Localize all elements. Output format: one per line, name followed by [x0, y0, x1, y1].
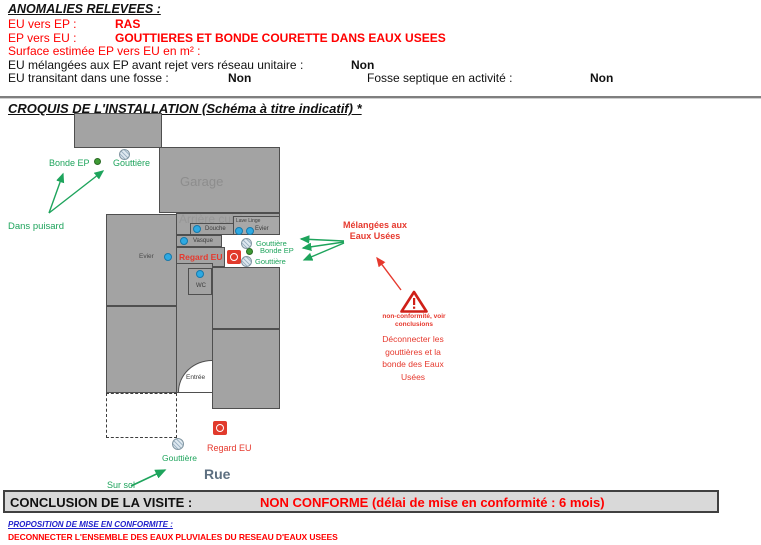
proposition-text: DECONNECTER L'ENSEMBLE DES EAUX PLUVIALE… [8, 532, 338, 542]
annotation-arrows [0, 0, 761, 545]
conclusion-banner: CONCLUSION DE LA VISITE : NON CONFORME (… [3, 490, 719, 513]
proposition-title: PROPOSITION DE MISE EN CONFORMITE : [8, 520, 173, 529]
conclusion-value: NON CONFORME (délai de mise en conformit… [260, 495, 605, 510]
conclusion-label: CONCLUSION DE LA VISITE : [10, 495, 192, 510]
